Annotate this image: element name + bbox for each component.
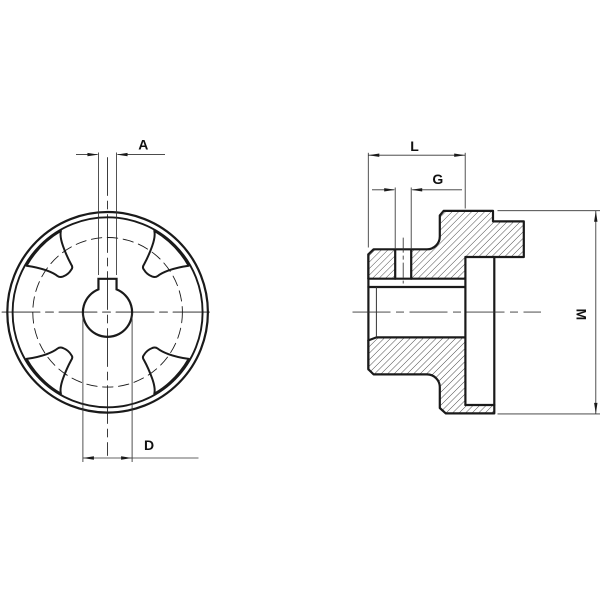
- svg-text:M: M: [574, 308, 590, 320]
- svg-text:L: L: [410, 138, 419, 154]
- svg-text:D: D: [144, 437, 154, 453]
- svg-text:A: A: [138, 136, 148, 152]
- svg-text:G: G: [432, 171, 443, 187]
